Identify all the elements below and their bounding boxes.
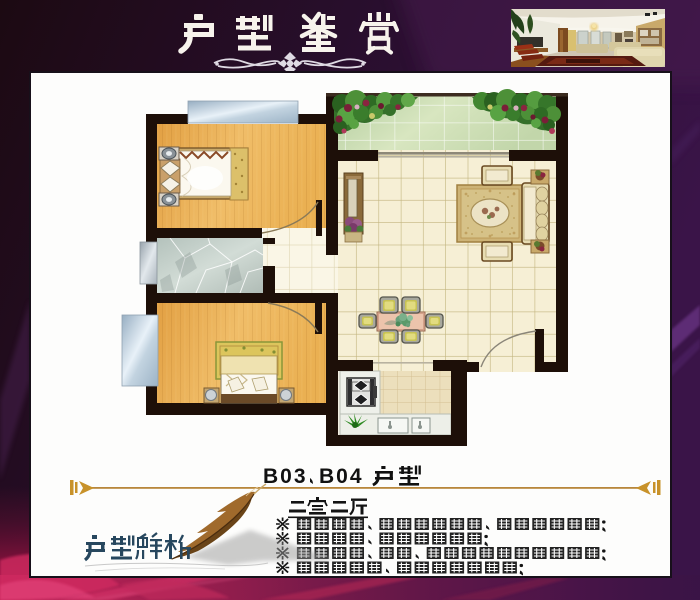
svg-text:B04: B04: [319, 465, 364, 488]
svg-text:B03: B03: [263, 465, 308, 488]
